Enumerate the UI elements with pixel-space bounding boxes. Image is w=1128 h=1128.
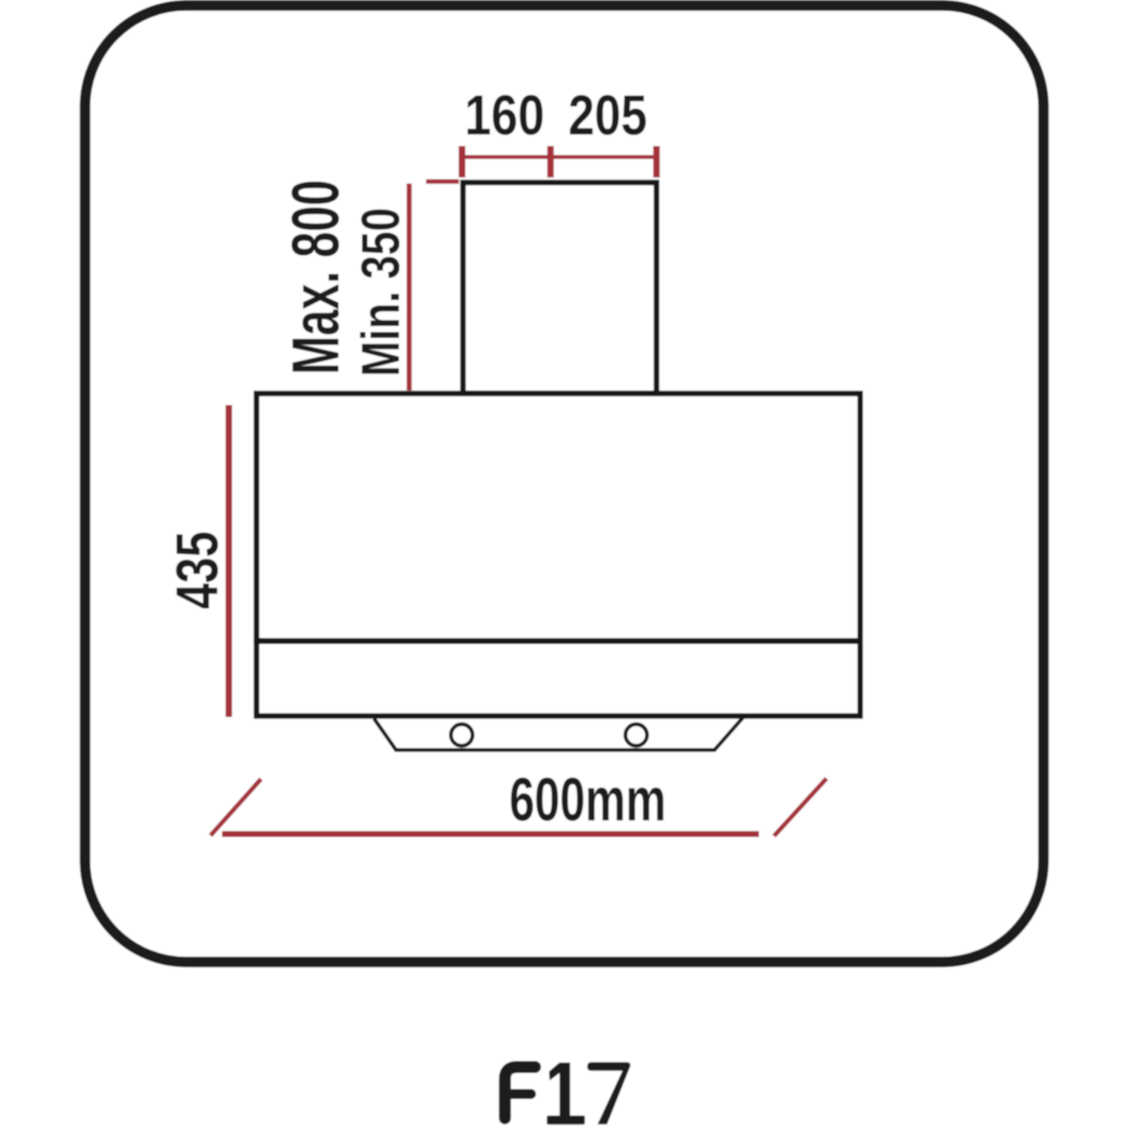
svg-text:205: 205 — [568, 84, 647, 148]
svg-text:435: 435 — [164, 531, 230, 609]
svg-text:Min. 350: Min. 350 — [351, 208, 411, 377]
svg-text:600mm: 600mm — [509, 766, 666, 834]
svg-text:Max. 800: Max. 800 — [279, 180, 354, 375]
svg-text:160: 160 — [465, 84, 545, 148]
